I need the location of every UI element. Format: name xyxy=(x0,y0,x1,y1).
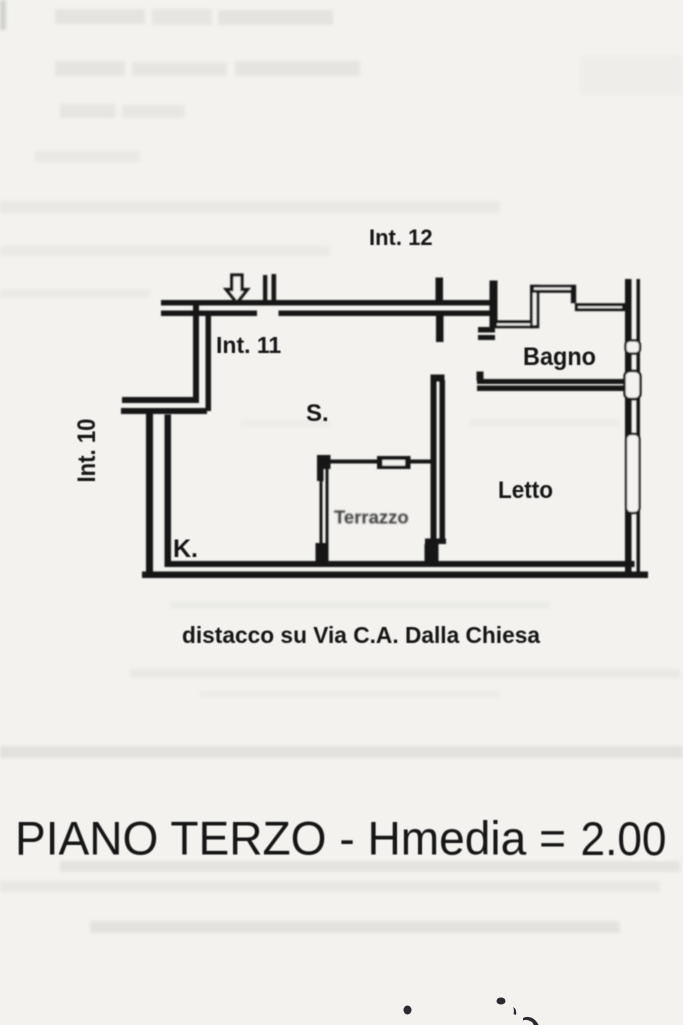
svg-text:distacco su Via C.A. Dalla Chi: distacco su Via C.A. Dalla Chiesa xyxy=(182,622,540,648)
svg-text:Int. 10: Int. 10 xyxy=(73,419,101,483)
svg-text:Int. 12: Int. 12 xyxy=(369,225,433,250)
svg-text:K.: K. xyxy=(173,535,198,563)
svg-text:Terrazzo: Terrazzo xyxy=(334,507,409,528)
svg-text:Letto: Letto xyxy=(498,477,553,504)
svg-text:PIANO TERZO - Hmedia =: PIANO TERZO - Hmedia = xyxy=(15,812,566,865)
svg-text:2.00: 2.00 xyxy=(581,812,667,865)
svg-text:Bagno: Bagno xyxy=(523,343,596,371)
svg-text:S.: S. xyxy=(306,400,329,427)
svg-text:Int. 11: Int. 11 xyxy=(216,332,281,358)
